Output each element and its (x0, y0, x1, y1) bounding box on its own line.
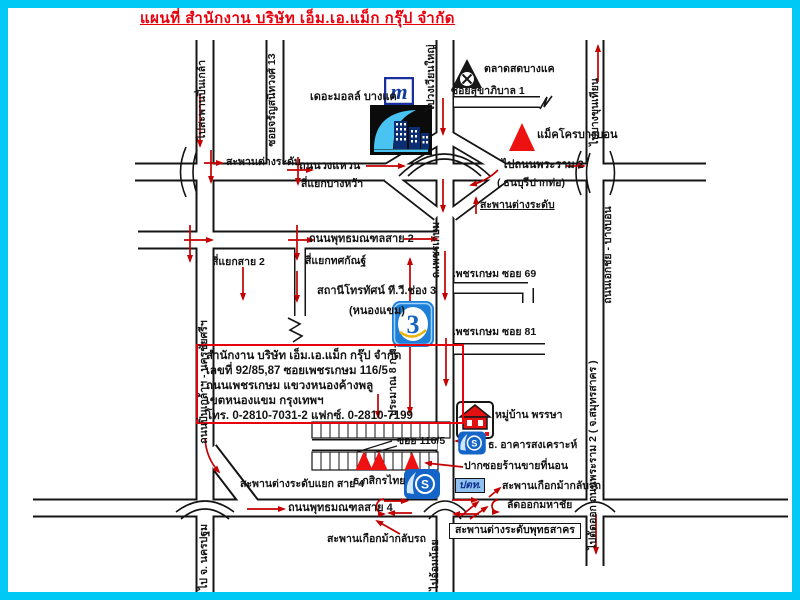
label-to-wongwianyai: ไปวงเวียนใหญ่ (426, 45, 438, 112)
label-to-nakhonpathom: ไป จ. นครปฐม (199, 524, 211, 590)
svg-text:S: S (471, 438, 477, 448)
label-pinklao-nakhonchaisi: ถนนปิ่นเกล้าฯ - นครชัยศรีฯ (199, 320, 211, 443)
label-approx-8km: ประมาณ 8 ก.ม. (388, 345, 400, 416)
label-sai2-road: ถนนพุทธมณฑลสาย 2 (309, 233, 414, 245)
label-sai2-intersection: สี่แยกสาย 2 (212, 257, 265, 269)
label-to-rama2-samutsakhon: ไปตัดออก ถนนพระราม 2 ( จ.สมุทรสาคร ) (588, 360, 600, 549)
label-interchange-right: สะพานต่างระดับ (480, 200, 555, 212)
label-to-pinklao: ไปสะพานปิ่นเกล้า (197, 60, 209, 140)
label-ghb-bank: ธ. อาคารสงเคราะห์ (488, 440, 577, 452)
label-to-omnoi: ไปอ้อมน้อย (430, 539, 442, 590)
label-sai4-interchange: สะพานต่างระดับแยก สาย 4 (240, 479, 364, 491)
label-market: ตลาดสดบางแค (484, 64, 555, 76)
the-mall-building-icon (370, 105, 432, 160)
label-totsakan-intersection: สี่แยกทศกัณฐ์ (305, 256, 366, 268)
label-channel3-station: สถานีโทรทัศน์ ที.วี.ช่อง 3 (317, 285, 436, 297)
label-to-bangkhunthian: ไปบางขุนเทียน (590, 78, 602, 146)
label-phetkasem-road: ถ.เพชรเกษม (431, 222, 443, 278)
label-wongwaen-road: ถนนวงแหวน (299, 160, 360, 172)
ptt-station-badge: ปตท. (455, 478, 485, 493)
office-info-box: สำนักงาน บริษัท เอ็ม.เอ.แม็ก กรุ๊ป จำกัด… (196, 344, 464, 424)
label-soi-charan13: ซอยจรัญสนิทวงศ์ 13 (267, 53, 279, 146)
label-nong-khaem: (หนองแขม) (349, 305, 405, 317)
label-phutthasakhon-interchange: สะพานต่างระดับพุทธสาคร (449, 523, 581, 539)
ghb-bank-icon: S (458, 430, 486, 461)
label-kbank: ธ.กสิกรไทย (353, 476, 405, 488)
label-ekkachai-bangbon: ถนนเอกชัย - บางบอน (603, 206, 615, 303)
label-the-mall: เดอะมอลล์ บางแค (310, 91, 397, 103)
label-horseshoe-right: สะพานเกือกม้ากลับรถ (502, 481, 601, 493)
office-address3: เขตหนองแขม กรุงเทพฯ (206, 394, 462, 409)
office-address1: เลขที่ 92/85,87 ซอยเพชรเกษม 116/5 (206, 364, 462, 379)
label-soi-116-5: ซอย 116/5 (397, 436, 445, 448)
label-horseshoe-bottom: สะพานเกือกม้ากลับรถ (327, 534, 426, 546)
label-mattress-shop: ปากซอยร้านขายที่นอน (464, 461, 568, 473)
label-soi-sukhaphiban: ซอยสุขาภิบาล 1 (451, 86, 525, 98)
kbank-icon: S (404, 467, 440, 506)
office-name: สำนักงาน บริษัท เอ็ม.เอ.แม็ก กรุ๊ป จำกัด (206, 349, 462, 364)
label-sai4-road: ถนนพุทธมณฑลสาย 4 (288, 502, 393, 514)
map-title: แผนที่ สำนักงาน บริษัท เอ็ม.เอ.แม็ก กรุ๊… (140, 11, 440, 28)
label-soi81: เพชรเกษม ซอย 81 (452, 327, 536, 339)
map-canvas: แผนที่ สำนักงาน บริษัท เอ็ม.เอ.แม็ก กรุ๊… (0, 0, 800, 600)
label-makro: แม็คโครบางบอน (537, 129, 618, 141)
label-soi69: เพชรเกษม ซอย 69 (452, 269, 536, 281)
office-address2: ถนนเพชรเกษม แขวงหนองค้างพลู (206, 379, 462, 394)
makro-triangle-icon (508, 121, 536, 158)
label-village: หมู่บ้าน พรรษา (495, 410, 563, 422)
office-phone: โทร. 0-2810-7031-2 แฟกซ์. 0-2810-7199 (206, 409, 462, 424)
label-mahachai-shortcut: ลัดออกมหาชัย (507, 500, 572, 512)
label-to-rama2: ไปถนนพระราม 2 (502, 159, 584, 171)
label-thonburi-pakto: ( ธนบุรีปากท่อ) (497, 178, 565, 190)
label-interchange-left: สะพานต่างระดับ (226, 157, 301, 169)
soi-end-arrow (540, 96, 552, 109)
svg-text:S: S (421, 478, 429, 492)
label-bangwa-intersection: สี่แยกบางหว้า (301, 179, 363, 191)
canal-zigzag (288, 318, 302, 342)
